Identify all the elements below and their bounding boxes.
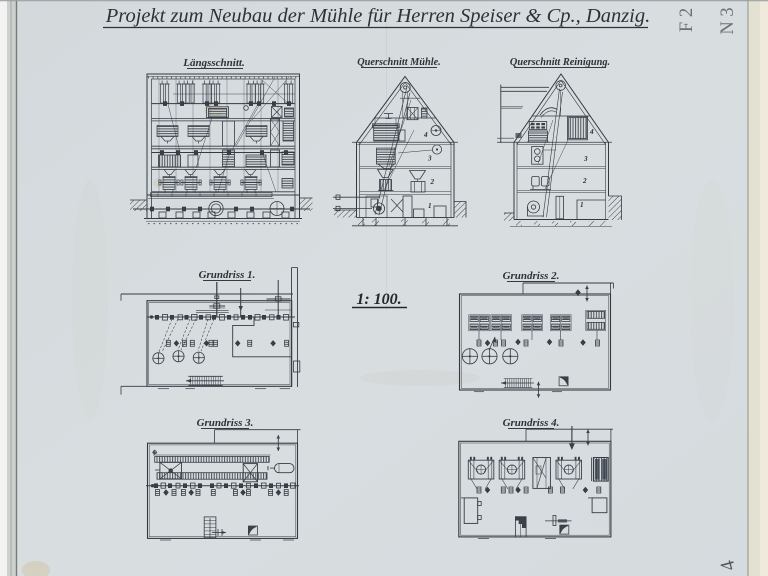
svg-text:4: 4: [589, 128, 594, 136]
svg-text:Grundriss 3.: Grundriss 3.: [197, 417, 254, 429]
svg-text:N 3: N 3: [718, 7, 738, 34]
svg-text:F 2: F 2: [677, 8, 697, 32]
svg-text:2: 2: [582, 177, 587, 185]
svg-text:2: 2: [430, 178, 435, 186]
svg-text:Querschnitt Reinigung.: Querschnitt Reinigung.: [510, 57, 610, 68]
svg-text:Grundriss 1.: Grundriss 1.: [199, 269, 256, 281]
svg-text:Projekt zum Neubau der Mühle f: Projekt zum Neubau der Mühle für Herren …: [105, 5, 651, 27]
svg-text:Grundriss 4.: Grundriss 4.: [503, 417, 560, 429]
svg-text:3: 3: [427, 155, 432, 163]
svg-text:1: 1: [580, 201, 584, 209]
svg-text:4: 4: [423, 131, 428, 139]
svg-text:1: 1: [428, 202, 432, 210]
svg-text:Querschnitt Mühle.: Querschnitt Mühle.: [357, 57, 441, 68]
svg-text:1: 100.: 1: 100.: [356, 291, 401, 308]
svg-text:3: 3: [583, 155, 588, 163]
svg-text:Grundriss 2.: Grundriss 2.: [503, 270, 560, 282]
svg-text:Längsschnitt.: Längsschnitt.: [182, 57, 244, 69]
